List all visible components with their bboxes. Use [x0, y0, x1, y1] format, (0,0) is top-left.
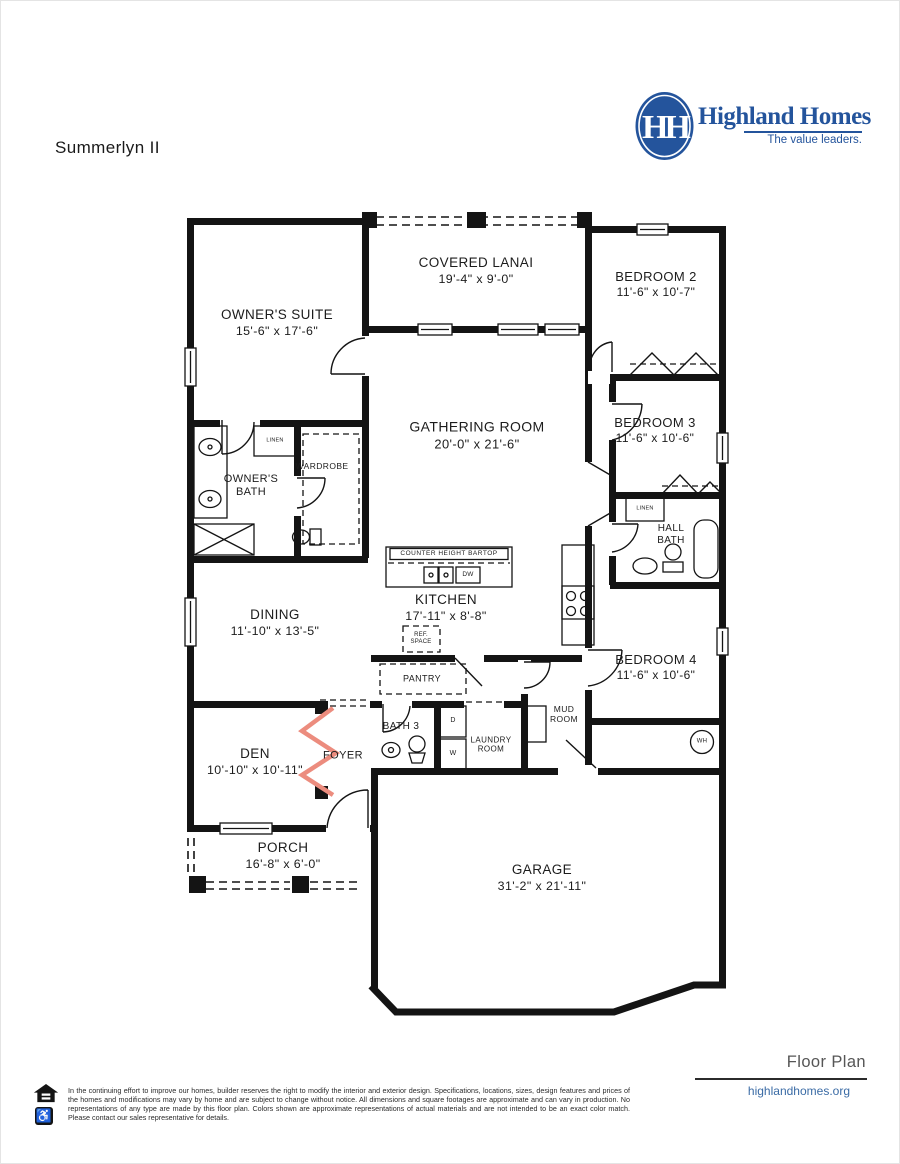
washer-label: W [450, 750, 457, 758]
sink-icon [199, 491, 221, 508]
toilet-icon [382, 743, 400, 758]
room-label-bedroom-3: BEDROOM 3 11'-6" x 10'-6" [614, 415, 696, 445]
bathtub-icon [694, 520, 718, 578]
room-label-bedroom-4: BEDROOM 4 11'-6" x 10'-6" [615, 652, 697, 682]
pedestal-sink-icon [409, 736, 425, 752]
disclaimer-text: In the continuing effort to improve our … [68, 1086, 630, 1122]
sink-icon [633, 558, 657, 574]
water-heater-label: WH [697, 738, 707, 745]
floor-plan-sheet: { "header": { "plan_name": "Summerlyn II… [0, 0, 900, 1164]
floor-plan-label: Floor Plan [787, 1053, 866, 1072]
dryer-label: D [450, 717, 455, 725]
room-label-bedroom-2: BEDROOM 2 11'-6" x 10'-7" [615, 269, 697, 299]
room-label-porch: PORCH 16'-8" x 6'-0" [245, 840, 320, 872]
brand-tagline: The value leaders. [744, 131, 862, 146]
room-label-laundry-room: LAUNDRY ROOM [463, 736, 519, 755]
dishwasher-label: DW [462, 571, 473, 579]
room-label-owners-bath: OWNER'S BATH [219, 473, 283, 499]
room-label-pantry: PANTRY [403, 674, 441, 685]
accessibility-icon: ♿ [35, 1107, 53, 1125]
room-label-kitchen: KITCHEN 17'-11" x 8'-8" [405, 592, 486, 624]
sink-icon [199, 439, 221, 456]
room-label-den: DEN 10'-10" x 10'-11" [207, 746, 303, 778]
ref-space-label: REF. SPACE [408, 632, 434, 646]
linen-label: LINEN [636, 506, 653, 513]
room-label-gathering-room: GATHERING ROOM 20'-0" x 21'-6" [409, 419, 544, 452]
logo-oval-icon: HH [634, 88, 696, 164]
equal-housing-icon [33, 1083, 59, 1104]
room-label-bath-3: BATH 3 [383, 721, 420, 733]
room-label-wardrobe: WARDROBE [296, 461, 349, 471]
toilet-icon [310, 529, 321, 545]
room-label-dining: DINING 11'-10" x 13'-5" [231, 607, 320, 639]
room-label-mud-room: MUD ROOM [541, 704, 587, 724]
room-label-hall-bath: HALL BATH [648, 523, 694, 547]
room-label-garage: GARAGE 31'-2" x 21'-11" [498, 862, 587, 894]
logo-monogram: HH [642, 109, 690, 146]
kitchen-sink-icon [424, 567, 438, 583]
brand-name: Highland Homes [698, 104, 862, 129]
counter-bartop-label: COUNTER HEIGHT BARTOP [400, 550, 497, 558]
linen-label: LINEN [266, 438, 283, 445]
room-label-owners-suite: OWNER'S SUITE 15'-6" x 17'-6" [221, 307, 333, 339]
page-title: Summerlyn II [55, 138, 160, 158]
room-label-covered-lanai: COVERED LANAI 19'-4" x 9'-0" [419, 255, 534, 287]
highland-homes-logo: HH Highland Homes The value leaders. [634, 88, 866, 166]
room-label-foyer: FOYER [323, 750, 363, 763]
footer-divider [695, 1078, 867, 1080]
website-link: highlandhomes.org [748, 1084, 850, 1098]
